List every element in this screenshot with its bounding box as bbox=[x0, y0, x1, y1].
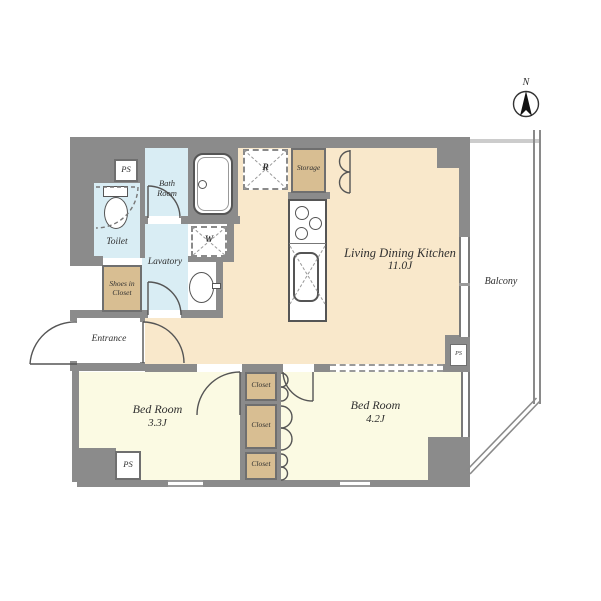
ps-shaft-right bbox=[450, 344, 467, 366]
balcony-diagonal-railing bbox=[467, 398, 541, 474]
washbasin-tap bbox=[212, 283, 221, 289]
opening-hall-door bbox=[140, 322, 145, 362]
balcony-label: Balcony bbox=[470, 276, 532, 288]
bathtub-drain bbox=[198, 180, 207, 189]
compass-icon bbox=[514, 91, 539, 117]
shoes-closet-box bbox=[102, 265, 142, 312]
wall-bottom bbox=[77, 480, 470, 487]
wall-right-upper bbox=[459, 168, 470, 237]
toilet-tank bbox=[103, 186, 128, 197]
stove-counter-divider bbox=[289, 243, 326, 244]
stove-burner-3 bbox=[295, 227, 308, 240]
refrigerator-space bbox=[243, 149, 288, 190]
partition-dashed-ldk-bedroom42 bbox=[330, 364, 443, 372]
window-bedroom42-bottom bbox=[340, 480, 370, 487]
lavatory-floor bbox=[142, 222, 188, 315]
washbasin bbox=[189, 272, 214, 303]
wall-left-toilet bbox=[70, 183, 94, 258]
window-ldk-balcony bbox=[459, 237, 470, 337]
ldk-floor-hallway bbox=[145, 318, 240, 365]
wall-entrance-top bbox=[70, 310, 223, 318]
ps-shaft-top bbox=[114, 159, 138, 182]
wall-left-bedroom bbox=[72, 368, 79, 452]
storage-box bbox=[291, 148, 326, 193]
stove-burner-1 bbox=[295, 206, 309, 220]
floor-plan: N Living Dining Kitchen 11.0J Bed Room 3… bbox=[0, 0, 601, 601]
window-bedroom33-bottom bbox=[168, 480, 203, 487]
washer-space bbox=[191, 226, 227, 257]
wall-entrance-bottom bbox=[70, 363, 145, 371]
opening-bath-door bbox=[148, 216, 181, 224]
wall-bottomleft-block bbox=[72, 448, 116, 482]
ldk-floor-main bbox=[238, 168, 459, 365]
compass-north-label: N bbox=[518, 77, 534, 89]
entrance-floor bbox=[77, 318, 140, 363]
opening-front-door bbox=[70, 321, 77, 361]
window-bedroom42-balcony bbox=[461, 372, 470, 437]
opening-lavatory-door bbox=[148, 310, 181, 318]
closet-mid-box bbox=[245, 404, 277, 449]
wall-topright-block bbox=[437, 137, 470, 168]
balcony-top-line bbox=[470, 139, 540, 143]
toilet-bowl bbox=[104, 197, 128, 229]
window-ldk-mullion bbox=[459, 283, 470, 286]
opening-bedroom33-door bbox=[197, 364, 242, 372]
closet-bottom-box bbox=[245, 452, 277, 480]
kitchen-sink bbox=[293, 252, 319, 302]
balcony-right-railing bbox=[533, 130, 541, 404]
wall-stub-below-toilet bbox=[70, 256, 103, 266]
closet-top-box bbox=[245, 372, 277, 401]
wall-storage-bottom bbox=[288, 192, 330, 199]
opening-bedroom42-door bbox=[283, 364, 314, 372]
bathroom-floor bbox=[145, 148, 188, 216]
stove-burner-2 bbox=[309, 217, 322, 230]
ps-shaft-bottom bbox=[115, 451, 141, 480]
